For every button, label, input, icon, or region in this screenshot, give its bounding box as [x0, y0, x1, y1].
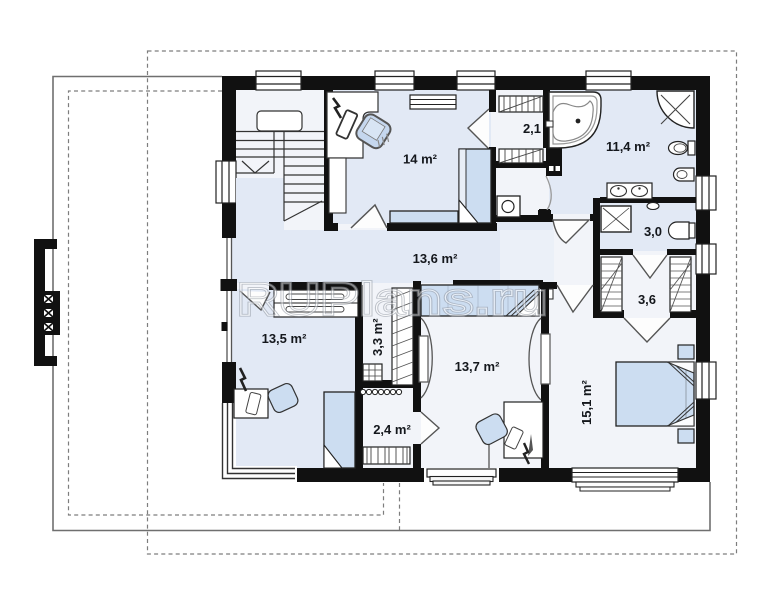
- svg-text:13,5 m²: 13,5 m²: [262, 331, 307, 346]
- svg-text:13,6 m²: 13,6 m²: [413, 251, 458, 266]
- svg-text:2,1: 2,1: [523, 121, 541, 136]
- svg-text:11,4 m²: 11,4 m²: [606, 139, 651, 154]
- svg-text:RUPlans.ru: RUPlans.ru: [237, 273, 548, 325]
- svg-text:13,7 m²: 13,7 m²: [455, 359, 500, 374]
- svg-text:3,0: 3,0: [644, 224, 662, 239]
- svg-text:2,4 m²: 2,4 m²: [373, 422, 411, 437]
- svg-text:3,6: 3,6: [638, 292, 656, 307]
- svg-text:15,1 m²: 15,1 m²: [579, 380, 594, 425]
- svg-text:14 m²: 14 m²: [403, 152, 438, 167]
